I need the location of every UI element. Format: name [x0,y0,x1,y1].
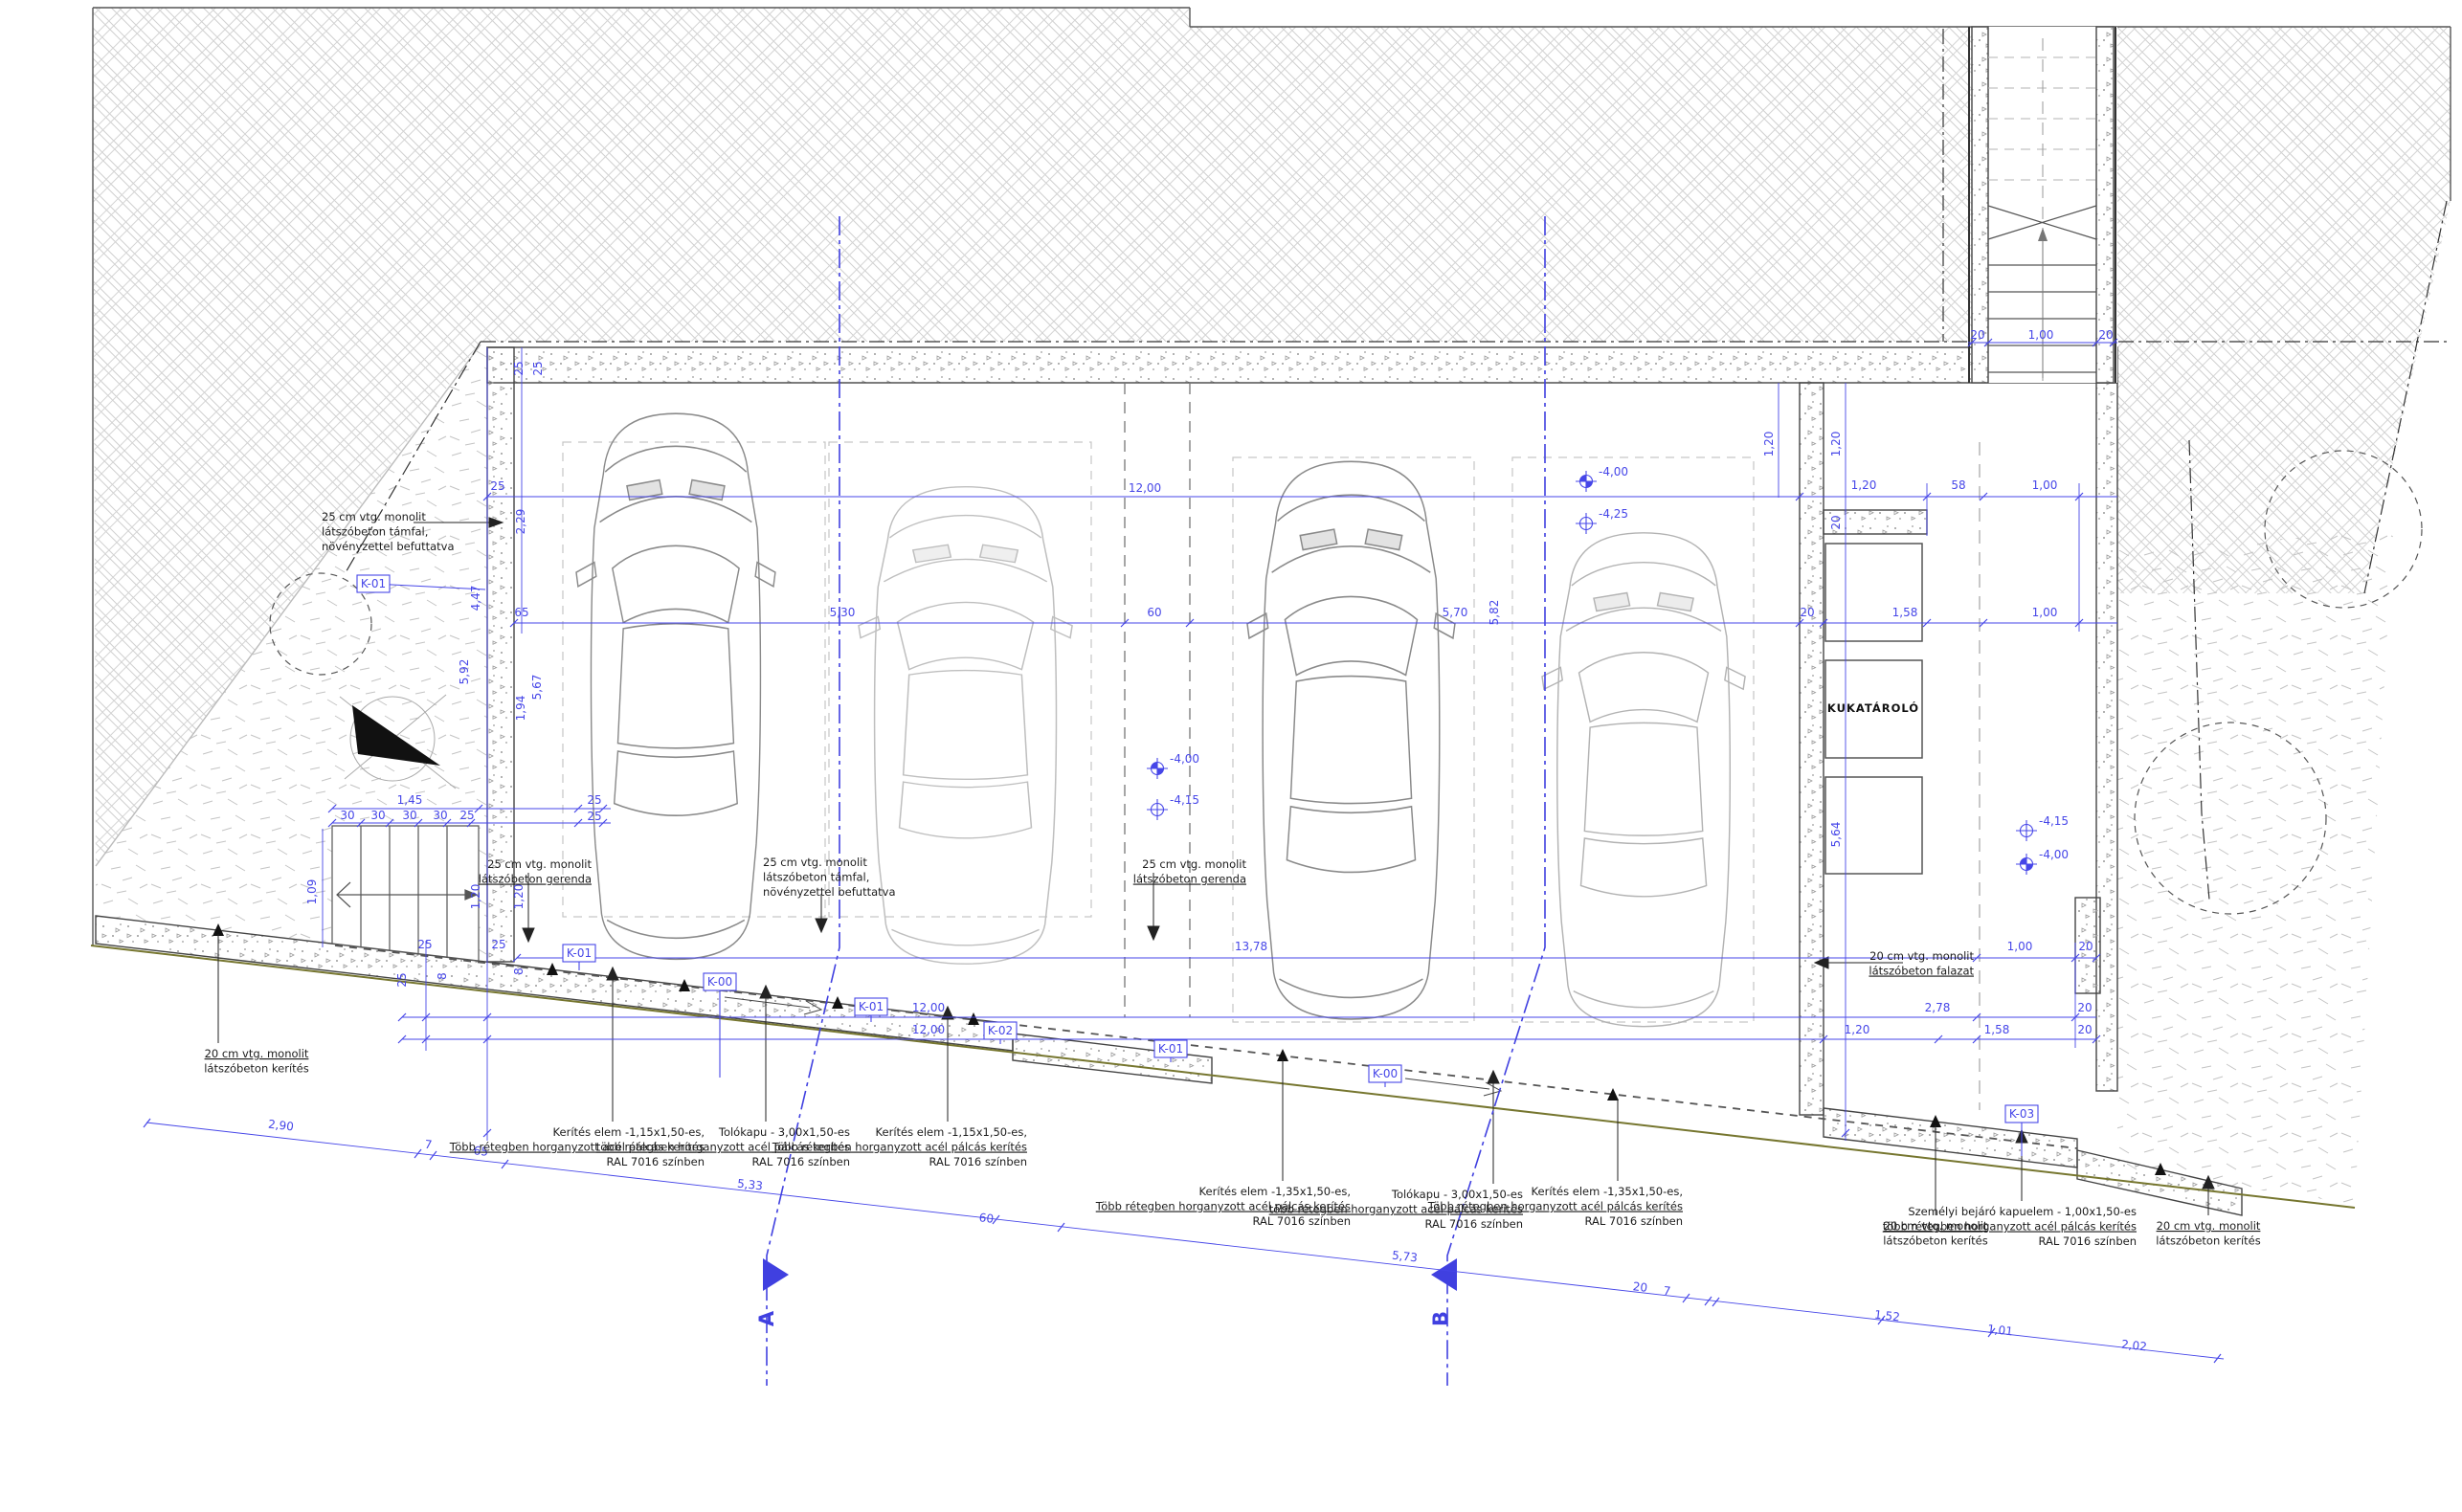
annotation-line: 25 cm vtg. monolit [763,856,867,869]
annotation-kerites-sw: 20 cm vtg. monolitlátszóbeton kerítés [204,1047,309,1076]
section-marker-a [763,1258,789,1291]
dimension-label: 1,00 [2032,606,2058,619]
parking-bay-4 [1512,457,1754,1022]
car-3 [1247,461,1455,1019]
dimension-label: 20 [2098,328,2113,342]
dimension-label: 25 [531,361,545,375]
level-marker-icon: -4,00 [2016,848,2069,875]
dimension-label: 1,20 [512,884,526,910]
dimension-label: 1,45 [397,793,423,807]
level-marker-icon: -4,15 [2016,814,2069,841]
section-line-a [767,216,839,1386]
level-value: -4,25 [1599,507,1628,521]
annotation-line: 20 cm vtg. monolit [205,1047,309,1060]
annotation-line: látszóbeton kerítés [1883,1234,1988,1248]
dimension-label: 12,00 [912,1023,945,1036]
level-marker-icon: -4,25 [1576,507,1628,534]
annotation-line: növényzettel befuttatva [322,540,455,553]
annotation-line: látszóbeton támfal, [763,871,869,884]
dimension-label: 1,20 [469,884,482,910]
level-value: -4,00 [1170,752,1199,766]
dimension-label: 60 [978,1211,995,1226]
dimension-label: 20 [1970,328,1984,342]
dimension-label: 5,82 [1488,600,1501,626]
site-boundary-olive-line [91,945,2355,1208]
dimension-label: 1,58 [1984,1023,2010,1036]
annotation-line: 25 cm vtg. monolit [322,510,426,523]
annotation-line: Kerítés elem -1,35x1,50-es, [1199,1185,1351,1198]
dimension-label: 1,20 [1845,1023,1870,1036]
annotation-line: 25 cm vtg. monolit [487,857,592,871]
dimension-label: 2,29 [514,509,527,535]
dimension-label: 60 [1147,606,1161,619]
dimension-label: 1,20 [1762,432,1776,457]
dimension-label: 2,90 [267,1118,294,1134]
dimension-label: 30 [433,809,447,822]
dimension-label: 5,73 [1391,1249,1418,1265]
svg-text:K-02: K-02 [988,1024,1013,1037]
dimension-label: 1,52 [1873,1308,1900,1324]
kukatarolo-label: KUKATÁROLÓ [1827,700,1919,715]
dimension-label: 7 [424,1138,433,1152]
dimension-label: 5,70 [1443,606,1468,619]
annotation-gerenda-1: 25 cm vtg. monolitlátszóbeton gerenda [479,857,593,886]
annotation-line: RAL 7016 színben [606,1155,705,1168]
level-marker-icon: -4,15 [1147,793,1199,820]
dimension-label: 1,00 [2032,478,2058,492]
dimension-label: 20 [2078,940,2093,953]
annotation-line: RAL 7016 színben [1584,1214,1683,1228]
dimension-label: 20 [2077,1001,2092,1014]
dimension-label: 5,64 [1829,822,1843,848]
bin-box-1 [1825,544,1922,641]
annotation-line: Több rétegben horganyzott acél pálcás ke… [1427,1200,1683,1213]
annotation-line: látszóbeton gerenda [479,873,592,886]
svg-text:K-03: K-03 [2009,1107,2034,1121]
annotation-line: Kerítés elem -1,15x1,50-es, [553,1125,705,1139]
dimension-label: 8 [436,972,449,980]
dimension-label: 25 [395,972,409,987]
annotation-kerites-se2: 20 cm vtg. monolitlátszóbeton kerítés [2156,1219,2261,1248]
annotation-tamfal-mid: 25 cm vtg. monolitlátszóbeton támfal,növ… [763,856,896,899]
level-value: -4,15 [1170,793,1199,807]
dimension-label: 25 [459,809,474,822]
section-marker-b [1431,1258,1457,1291]
annotation-line: látszóbeton falazat [1869,965,1974,978]
dimension-label: 12,00 [912,1001,945,1014]
stairs-sw [332,826,479,961]
parking-bay-1 [563,442,825,917]
dimension-label: 25 [490,479,504,493]
annotation-line: Tolókapu - 3,00x1,50-es [718,1125,850,1139]
grass-region-east [2117,531,2393,1204]
annotation-line: növényzettel befuttatva [763,885,896,899]
parking-bay-2 [829,442,1091,917]
svg-text:K-01: K-01 [1158,1042,1183,1056]
annotation-line: RAL 7016 színben [751,1155,850,1168]
dimension-label: 30 [340,809,354,822]
annotation-line: 25 cm vtg. monolit [1142,857,1246,871]
dimension-label: 5,67 [530,675,544,700]
dimension-label: 30 [402,809,416,822]
annotation-line: látszóbeton kerítés [2156,1234,2261,1248]
dimension-label: 5,30 [830,606,856,619]
retaining-wall-north [487,347,2117,383]
dimension-label: 25 [587,793,601,807]
dimension-label: 30 [370,809,385,822]
annotation-line: látszóbeton kerítés [204,1062,309,1076]
annotation-line: látszóbeton gerenda [1133,873,1246,886]
svg-text:K-01: K-01 [859,1000,884,1013]
level-value: -4,00 [2039,848,2069,861]
dimension-label: 1,00 [2028,328,2054,342]
parked-cars [576,413,1745,1026]
level-value: -4,15 [2039,814,2069,828]
dimension-label: 20 [1829,515,1843,529]
dimension-label: 20 [1632,1279,1648,1295]
dimension-label: 12,00 [1129,481,1161,495]
annotation-line: RAL 7016 színben [1424,1217,1523,1231]
dimension-label: 25 [512,361,526,375]
dimension-label: 58 [1951,478,1965,492]
section-b-label: B [1429,1311,1452,1326]
parking-bay-3 [1233,457,1474,1022]
dimension-label: 25 [417,938,432,951]
annotation-line: RAL 7016 színben [1252,1214,1351,1228]
svg-text:K-01: K-01 [567,946,592,960]
site-plan-drawing: KUKATÁROLÓ A B 201,002 [0,0,2462,1512]
dimension-label: 7 [1663,1284,1671,1299]
annotation-line: 20 cm vtg. monolit [2157,1219,2261,1233]
level-marker-icon: -4,00 [1576,465,1628,492]
dimension-label: 1,09 [305,879,319,905]
fence-footing-1 [96,916,1013,1051]
fence-footing-3 [1824,1108,2077,1167]
dimension-label: 65 [514,606,528,619]
annotation-line: látszóbeton támfal, [322,525,428,539]
dimension-label: 1,94 [514,696,527,722]
annotation-line: Több rétegben horganyzott acél pálcás ke… [772,1141,1027,1154]
dimension-label: 8 [512,967,526,975]
annotation-line: több rétegben horganyzott acél pálcás ke… [1883,1220,2137,1234]
level-value: -4,00 [1599,465,1628,478]
annotation-line: Kerítés elem -1,35x1,50-es, [1532,1185,1683,1198]
annotation-line: 20 cm vtg. monolit [1869,949,1974,963]
dimension-label: 13,78 [1235,940,1267,953]
section-a-label: A [755,1310,778,1326]
dimension-label: 2,78 [1925,1001,1951,1014]
dimension-label: 1,01 [1986,1323,2013,1339]
annotation-falazat: 20 cm vtg. monolitlátszóbeton falazat [1869,949,1974,978]
annotation-line: RAL 7016 színben [929,1155,1027,1168]
dimension-label: 2,02 [2120,1338,2147,1354]
svg-text:K-00: K-00 [1373,1067,1398,1080]
grid-lines [1125,383,1190,1017]
fence-element-marker: K-01 [563,945,595,970]
dimension-label: 1,20 [1851,478,1877,492]
annotation-line: Kerítés elem -1,15x1,50-es, [876,1125,1027,1139]
car-1 [576,413,775,959]
fence-element-marker: K-00 [1369,1065,1401,1087]
dimension-label: 1,58 [1892,606,1918,619]
dimension-label: 20 [2077,1023,2092,1036]
svg-text:K-00: K-00 [707,975,732,989]
wall-east-inner [1800,383,1824,1115]
dimension-label: 1,20 [1829,432,1843,457]
svg-text:K-01: K-01 [361,577,386,590]
level-marker-icon: -4,00 [1147,752,1199,779]
annotation-line: Személyi bejáró kapuelem - 1,00x1,50-es [1908,1205,2137,1218]
car-4 [1542,533,1745,1027]
dimension-label: 5,92 [458,659,471,685]
dimension-label: 20 [1800,606,1814,619]
fence-element-marker: K-00 [704,973,736,1078]
dimension-label: 25 [491,938,505,951]
annotation-gerenda-2: 25 cm vtg. monolitlátszóbeton gerenda [1133,857,1247,886]
annotation-line: RAL 7016 színben [2038,1234,2137,1248]
dimension-label: 25 [587,810,601,823]
dimension-label: 1,00 [2007,940,2033,953]
level-markers: -4,00-4,25-4,00-4,15-4,15-4,00 [1147,465,2069,875]
